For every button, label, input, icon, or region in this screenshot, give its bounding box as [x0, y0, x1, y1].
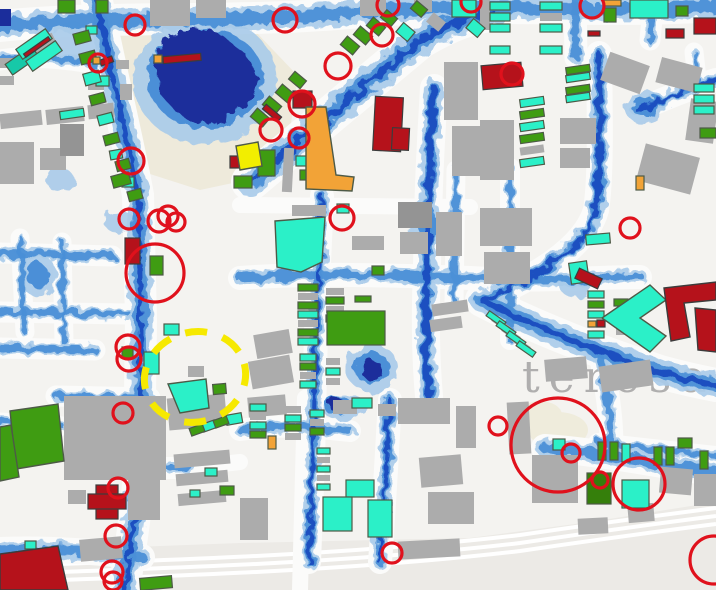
building-green [234, 176, 252, 188]
building-gray [378, 404, 396, 416]
building-cyan [540, 46, 562, 54]
flood-medium [0, 253, 112, 256]
map-canvas[interactable]: teresa [0, 0, 716, 590]
building-cyan [326, 368, 340, 375]
building-cyan [588, 311, 604, 318]
building-gray [694, 474, 716, 506]
building-gray [540, 13, 562, 21]
flood-shallow-blob [46, 168, 74, 192]
building-gray [0, 76, 14, 85]
building-cyan [25, 541, 36, 549]
building-cyan [323, 497, 352, 531]
flood-deep-blob [361, 360, 383, 380]
building-gray [480, 120, 514, 180]
building-green [678, 438, 692, 448]
building-gray [398, 202, 432, 228]
building-gray [456, 406, 476, 448]
building-cyan [490, 46, 510, 54]
deep-flood-cell [0, 9, 11, 26]
building-gray [292, 205, 326, 216]
building-gray [419, 454, 463, 488]
building-orange [268, 436, 276, 449]
building-green [310, 428, 324, 435]
building-cyan [630, 0, 668, 18]
building-gray [116, 60, 129, 69]
building-gray [285, 433, 301, 440]
building-gray [150, 0, 190, 26]
building-gray [317, 457, 330, 463]
building-cyan [346, 480, 374, 497]
building-gray [240, 498, 268, 540]
building-cyan [490, 13, 510, 21]
building-green [588, 301, 604, 308]
building-cyan [490, 2, 510, 10]
building-green [220, 486, 234, 495]
building-cyan [490, 24, 510, 32]
building-gray [560, 118, 596, 144]
building-red [597, 320, 605, 327]
flood-medium-blob [26, 263, 48, 287]
building-gray [326, 378, 340, 385]
building-cyan [588, 291, 604, 298]
building-gray [484, 252, 530, 284]
building-cyan [300, 381, 316, 388]
building-green [676, 6, 688, 16]
building-gray [398, 398, 450, 424]
building-gray [317, 475, 330, 481]
building-green [298, 302, 318, 309]
building-cyan [317, 466, 330, 472]
building-red [694, 18, 716, 34]
building-green [300, 363, 316, 370]
building-cyan [250, 404, 266, 411]
building-cyan [694, 106, 714, 114]
flood-medium [62, 242, 64, 342]
building-gray [428, 492, 474, 524]
large-cyan-building [275, 217, 325, 272]
building-cyan [300, 354, 316, 361]
building-cyan [250, 422, 266, 429]
building-orange [588, 321, 596, 327]
building-gray [298, 320, 318, 327]
building-green [140, 576, 173, 590]
building-cyan [540, 24, 562, 32]
building-gray [128, 478, 160, 520]
dark-red-complex [695, 308, 716, 352]
building-gray [196, 0, 226, 18]
building-green [355, 296, 371, 302]
building-cyan [368, 500, 392, 537]
building-red [588, 31, 600, 36]
green-building [10, 404, 64, 469]
yellow-building [236, 142, 262, 170]
building-orange [154, 55, 162, 63]
building-gray [0, 142, 34, 184]
building-gray [188, 366, 204, 377]
building-cyan [298, 338, 318, 345]
building-gray [352, 236, 384, 250]
building-red [666, 29, 684, 38]
building-cyan [310, 410, 324, 417]
building-cyan [694, 95, 714, 103]
building-cyan [588, 331, 604, 338]
building-green [298, 329, 318, 336]
building-orange [93, 57, 100, 64]
building-gray [326, 288, 344, 295]
building-green [58, 0, 75, 13]
building-orange [636, 176, 644, 190]
building-gray [120, 84, 132, 100]
building-orange [604, 0, 621, 6]
building-green [250, 431, 266, 438]
dark-red-building [0, 546, 68, 590]
building-green [700, 451, 708, 469]
building-green [610, 442, 618, 460]
building-green [604, 8, 616, 22]
building-cyan [298, 311, 318, 318]
building-cyan [540, 2, 562, 10]
building-gray [68, 490, 86, 504]
building-red [391, 128, 409, 151]
building-cyan [285, 415, 301, 422]
building-cyan [317, 448, 330, 454]
building-gray [578, 517, 609, 535]
building-cyan [586, 233, 611, 245]
building-green [700, 128, 716, 138]
building-gray [250, 413, 266, 420]
building-green [298, 284, 318, 291]
building-gray [480, 208, 532, 246]
building-cyan [622, 480, 649, 508]
building-cyan [352, 398, 372, 408]
building-gray [300, 372, 316, 379]
building-cyan [164, 324, 179, 335]
building-green [285, 424, 301, 431]
building-gray [326, 358, 340, 365]
building-green [326, 297, 344, 304]
building-gray [444, 62, 478, 120]
building-gray [436, 212, 462, 256]
flood-risk-map[interactable]: teresa [0, 0, 716, 590]
building-gray [398, 538, 461, 559]
building-gray [400, 232, 428, 254]
building-green [327, 311, 385, 345]
building-green [372, 266, 384, 275]
building-gray [544, 356, 588, 382]
building-green [150, 256, 163, 275]
building-green [213, 383, 227, 394]
flood-medium [575, 0, 576, 58]
building-gray [285, 406, 301, 413]
building-cyan [317, 484, 330, 490]
building-cyan [694, 84, 714, 92]
building-gray [298, 293, 318, 300]
building-gray [79, 536, 123, 562]
building-gray [60, 124, 84, 156]
building-gray [310, 419, 324, 426]
building-cyan [205, 468, 217, 476]
building-green [666, 447, 674, 465]
building-cyan [190, 490, 200, 497]
building-green [96, 0, 108, 13]
building-gray [560, 148, 590, 168]
building-gray [452, 126, 480, 176]
flood-medium [0, 348, 95, 350]
